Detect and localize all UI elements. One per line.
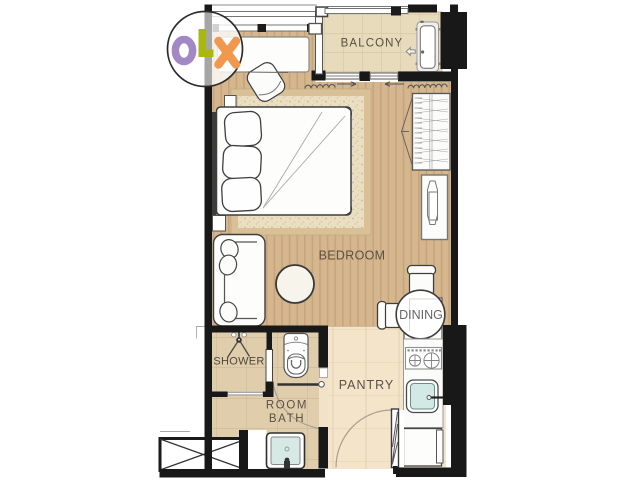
- svg-text:BALCONY: BALCONY: [341, 38, 404, 50]
- svg-text:ROOM: ROOM: [266, 400, 308, 412]
- svg-text:BEDROOM: BEDROOM: [319, 249, 386, 263]
- svg-text:BATH: BATH: [269, 413, 305, 425]
- svg-text:SHOWER: SHOWER: [213, 356, 264, 368]
- svg-text:PANTRY: PANTRY: [339, 378, 395, 392]
- svg-text:DINING: DINING: [399, 308, 443, 322]
